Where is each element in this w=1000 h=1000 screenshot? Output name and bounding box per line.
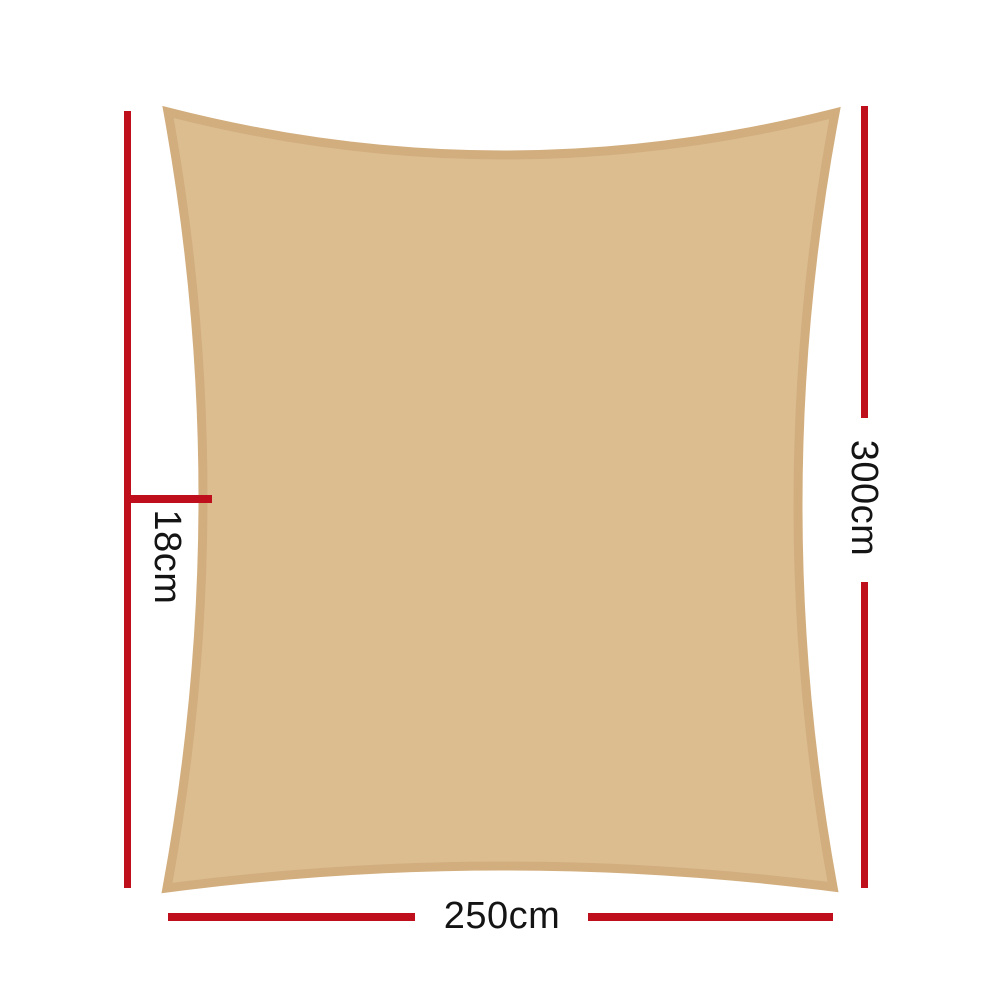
width-label: 250cm [444,897,561,935]
curve-depth-tick [124,495,212,503]
right-dimension-line-bottom [861,582,868,888]
bottom-dimension-line-right [588,913,833,921]
right-dimension-line-top [861,106,868,418]
bottom-dimension-line-left [168,913,415,921]
dimension-diagram: 18cm 300cm 250cm [0,0,1000,1000]
shade-sail-shape [167,112,835,888]
height-label: 300cm [845,440,883,557]
curve-depth-label: 18cm [148,510,186,605]
